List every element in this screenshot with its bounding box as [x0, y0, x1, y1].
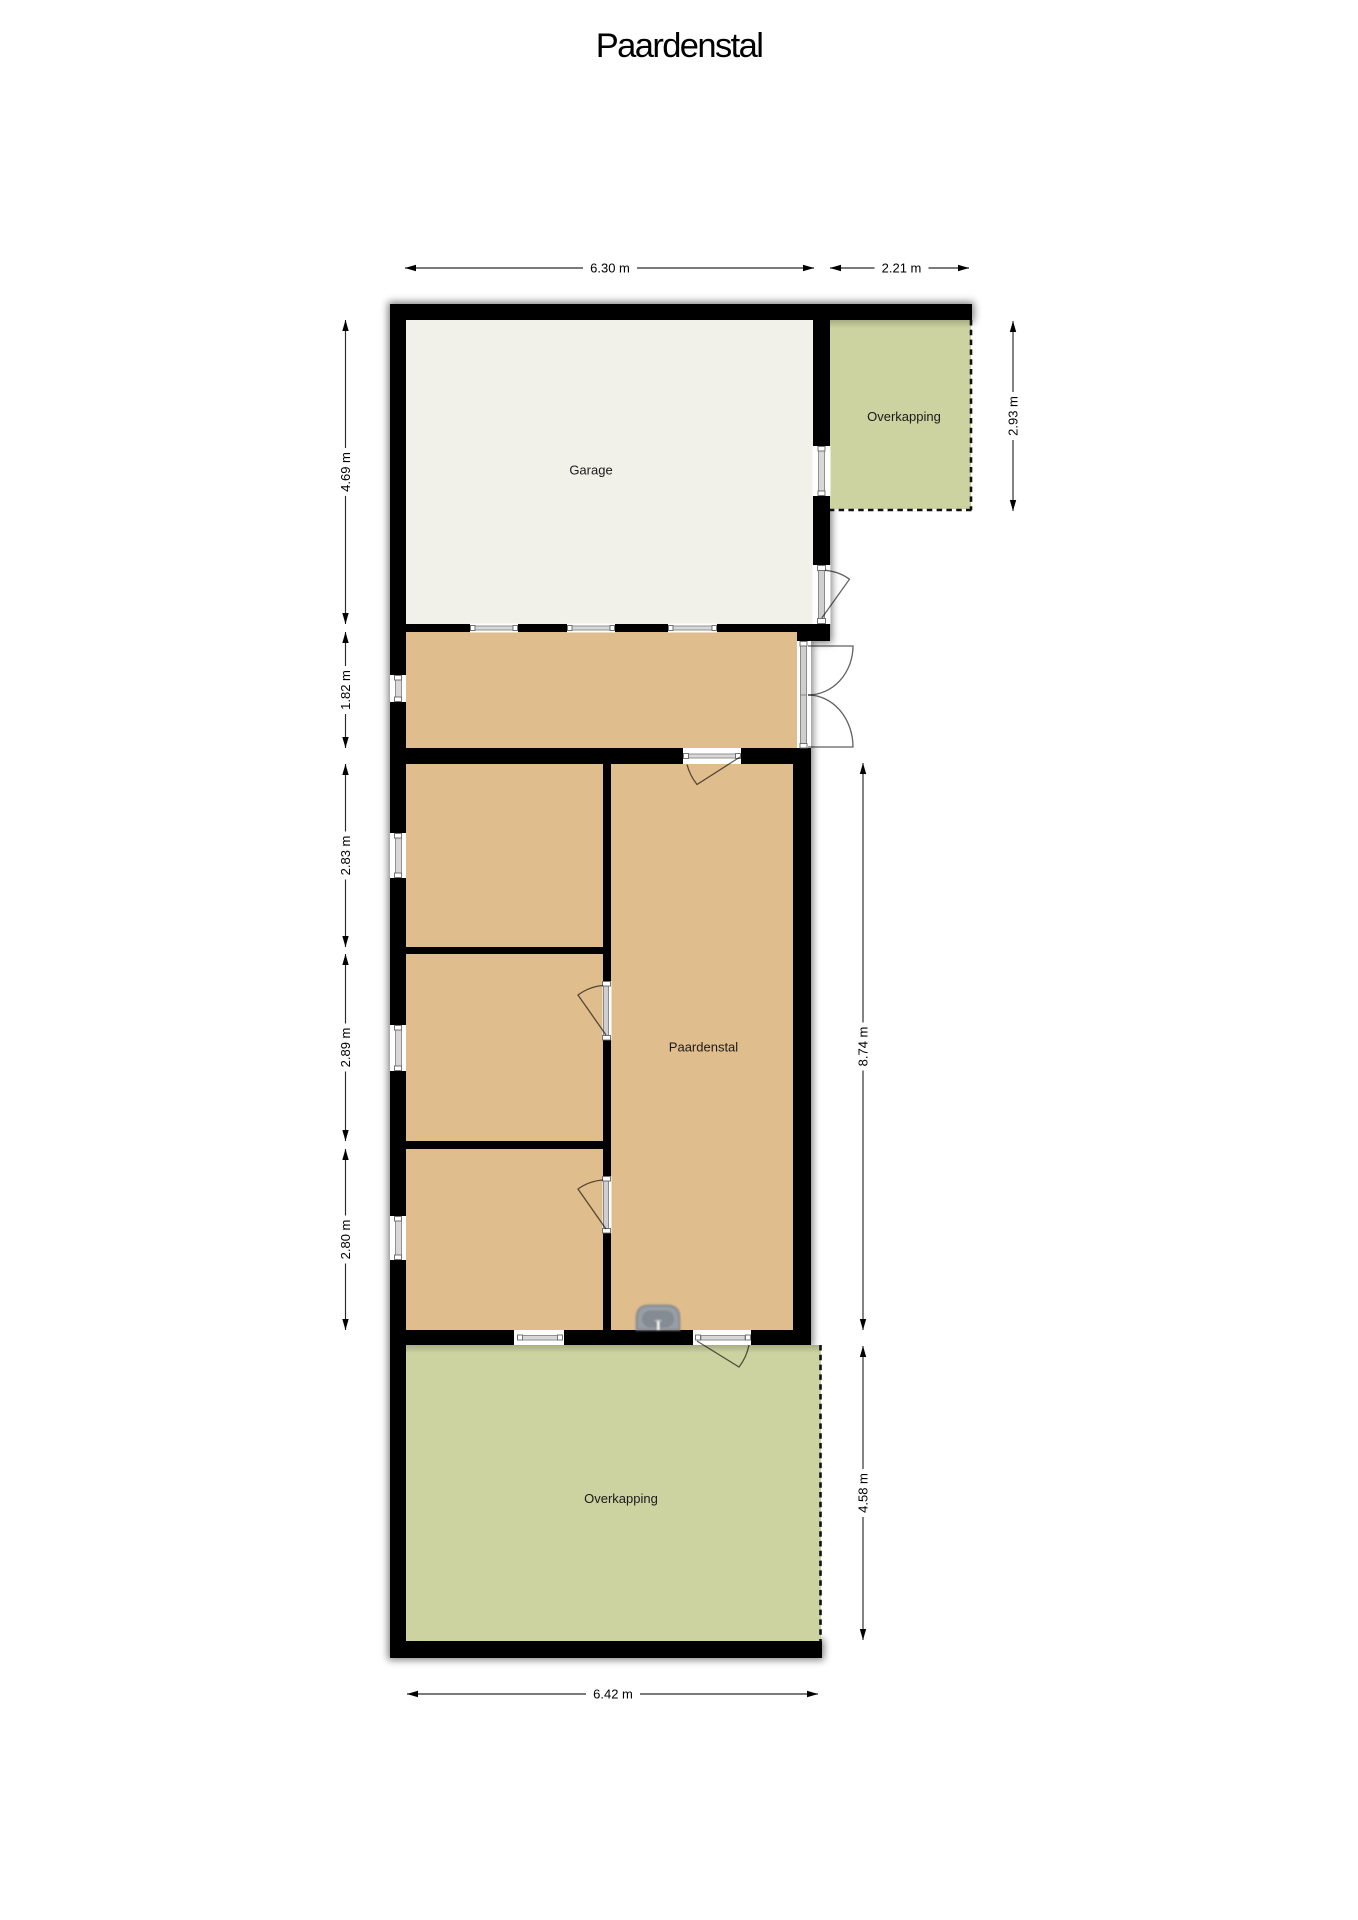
svg-text:Paardenstal: Paardenstal — [596, 27, 763, 65]
svg-text:6.42 m: 6.42 m — [593, 1687, 633, 1702]
svg-text:2.83 m: 2.83 m — [338, 836, 353, 876]
svg-text:Paardenstal: Paardenstal — [669, 1040, 738, 1055]
svg-text:6.30 m: 6.30 m — [590, 261, 630, 276]
svg-text:Overkapping: Overkapping — [867, 409, 941, 424]
svg-text:4.69 m: 4.69 m — [338, 452, 353, 492]
svg-text:1.82 m: 1.82 m — [338, 670, 353, 710]
svg-text:Garage: Garage — [569, 463, 612, 478]
svg-text:8.74 m: 8.74 m — [856, 1027, 871, 1067]
svg-text:2.80 m: 2.80 m — [338, 1220, 353, 1260]
svg-text:4.58 m: 4.58 m — [856, 1473, 871, 1513]
svg-text:2.89 m: 2.89 m — [338, 1028, 353, 1068]
svg-text:2.21 m: 2.21 m — [882, 261, 922, 276]
svg-text:Overkapping: Overkapping — [584, 1491, 658, 1506]
svg-text:2.93 m: 2.93 m — [1006, 396, 1021, 436]
